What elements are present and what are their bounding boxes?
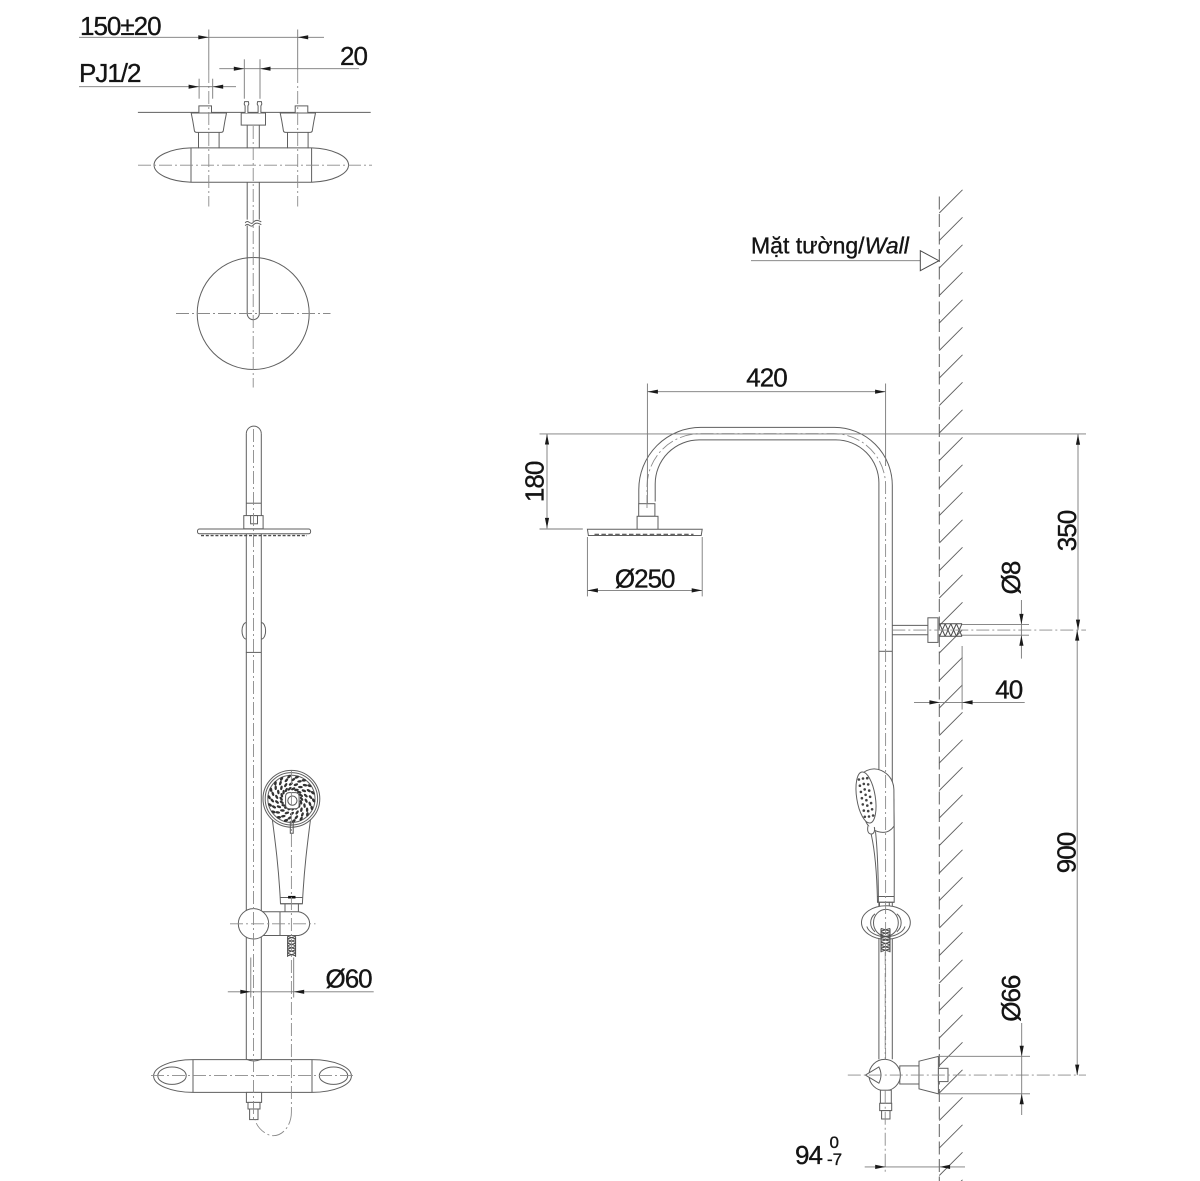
svg-text:20: 20 xyxy=(340,41,367,71)
svg-text:350: 350 xyxy=(1052,510,1082,551)
svg-text:Ø8: Ø8 xyxy=(996,561,1026,594)
svg-text:40: 40 xyxy=(995,675,1022,705)
svg-text:420: 420 xyxy=(746,363,787,393)
svg-text:Ø66: Ø66 xyxy=(996,975,1026,1022)
svg-text:150±20: 150±20 xyxy=(80,11,161,41)
svg-text:Ø60: Ø60 xyxy=(326,964,373,994)
svg-text:900: 900 xyxy=(1051,832,1081,873)
svg-text:94: 94 xyxy=(795,1140,822,1170)
svg-text:180: 180 xyxy=(520,461,550,502)
svg-text:-7: -7 xyxy=(827,1150,842,1169)
svg-text:Mặt tường/Wall: Mặt tường/Wall xyxy=(751,233,910,259)
svg-text:Ø250: Ø250 xyxy=(615,563,675,593)
svg-text:PJ1/2: PJ1/2 xyxy=(79,58,141,88)
